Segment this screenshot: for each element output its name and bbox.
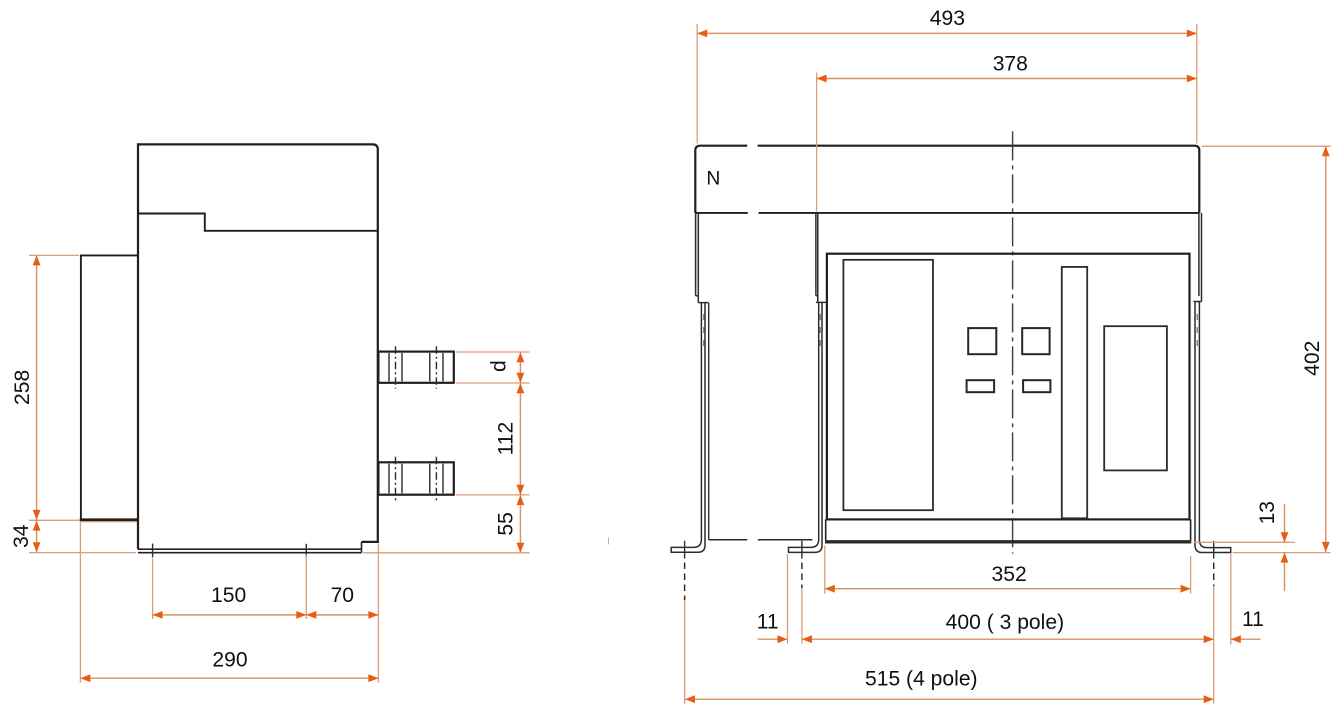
svg-text:N: N xyxy=(706,169,720,190)
svg-text:493: 493 xyxy=(930,7,965,30)
svg-text:352: 352 xyxy=(991,563,1026,586)
svg-text:70: 70 xyxy=(331,584,354,607)
svg-text:258: 258 xyxy=(11,370,34,405)
svg-text:378: 378 xyxy=(993,53,1028,76)
svg-text:290: 290 xyxy=(212,648,247,671)
svg-text:150: 150 xyxy=(211,584,246,607)
svg-text:13: 13 xyxy=(1256,501,1279,524)
svg-text:515 (4 pole): 515 (4 pole) xyxy=(865,668,978,691)
svg-text:400 ( 3 pole): 400 ( 3 pole) xyxy=(946,611,1064,634)
svg-text:d: d xyxy=(487,360,510,372)
svg-text:112: 112 xyxy=(494,422,517,456)
svg-text:11: 11 xyxy=(1242,608,1264,631)
svg-text:34: 34 xyxy=(10,524,33,548)
svg-text:55: 55 xyxy=(494,512,517,535)
svg-text:402: 402 xyxy=(1301,341,1324,376)
svg-text:11: 11 xyxy=(757,610,779,633)
